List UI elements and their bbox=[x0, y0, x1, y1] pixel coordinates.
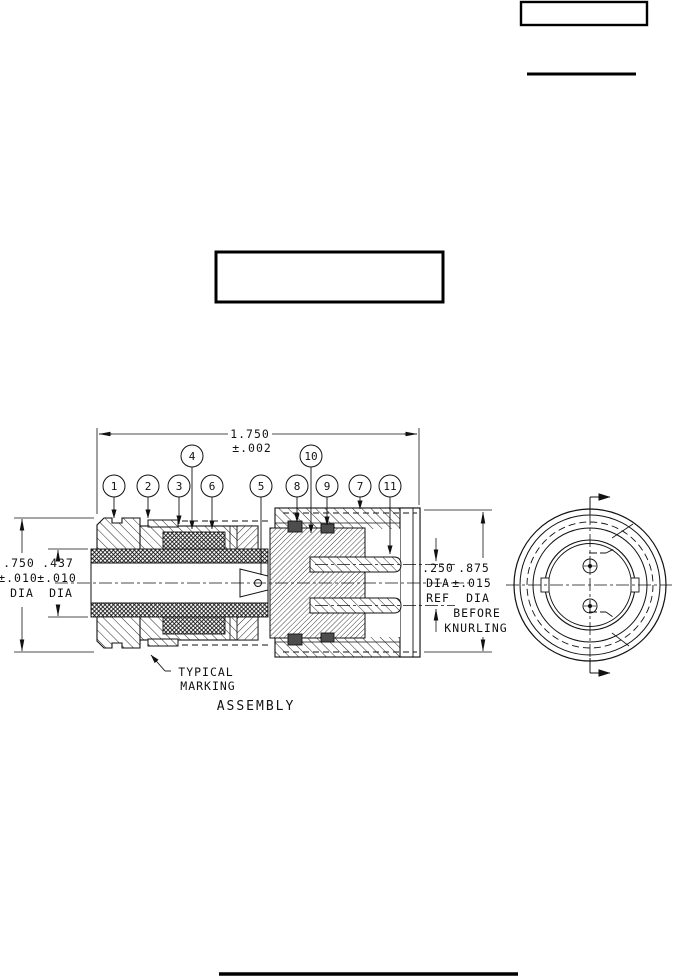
drawing-sheet: 1.750 ±.002 .750 ±.010 DIA .437 ±.010 DI… bbox=[0, 0, 673, 978]
marking-note: TYPICAL MARKING bbox=[151, 655, 236, 693]
braid-band-top bbox=[91, 549, 268, 563]
seal-ring bbox=[321, 524, 334, 533]
mid-body-boss-top bbox=[148, 520, 178, 527]
note-box bbox=[216, 252, 443, 302]
dim-knurl-l3: DIA bbox=[466, 591, 490, 605]
seal-ring bbox=[288, 634, 302, 645]
front-ring-top bbox=[237, 526, 258, 549]
callout-8-label: 8 bbox=[294, 480, 301, 493]
marking-note-line2: MARKING bbox=[180, 679, 235, 693]
seal-ring bbox=[288, 521, 302, 532]
dim-cable-unit: DIA bbox=[49, 586, 73, 600]
callout-4-label: 4 bbox=[189, 450, 196, 463]
dim-pin-spacing: .250 DIA REF bbox=[422, 538, 454, 632]
dim-cable-value: .437 bbox=[42, 556, 74, 570]
dim-knurl-l5: KNURLING bbox=[444, 621, 507, 635]
dim-cable-tol: ±.010 bbox=[37, 571, 77, 585]
seal-ring bbox=[321, 633, 334, 642]
dim-knurl-l2: ±.015 bbox=[452, 576, 492, 590]
callout-10-label: 10 bbox=[304, 450, 317, 463]
assembly-view bbox=[55, 428, 470, 657]
view-title: ASSEMBLY bbox=[217, 699, 296, 714]
dim-pin-l3: REF bbox=[426, 591, 450, 605]
dim-outer-value: .750 bbox=[3, 556, 35, 570]
dim-knurl-l4: BEFORE bbox=[453, 606, 501, 620]
callout-7-label: 7 bbox=[357, 480, 364, 493]
callout-2-label: 2 bbox=[145, 480, 152, 493]
dim-length-value: 1.750 bbox=[230, 427, 270, 441]
callout-6-label: 6 bbox=[209, 480, 216, 493]
marking-note-line1: TYPICAL bbox=[178, 665, 233, 679]
connector-face-plate bbox=[400, 508, 420, 657]
ferrule-top bbox=[163, 532, 225, 549]
front-ring-bottom bbox=[237, 617, 258, 640]
ferrule-bottom bbox=[163, 617, 225, 634]
revision-box bbox=[521, 2, 647, 25]
mid-body-boss-bottom bbox=[148, 639, 178, 646]
dim-overall-length: 1.750 ±.002 bbox=[99, 427, 417, 455]
braid-band-bottom bbox=[91, 603, 268, 617]
dim-outer-dia: .750 ±.010 DIA bbox=[0, 518, 94, 652]
dim-pin-l1: .250 bbox=[422, 561, 454, 575]
dim-pin-l2: DIA bbox=[426, 576, 450, 590]
dim-length-tol: ±.002 bbox=[232, 441, 272, 455]
callout-5-label: 5 bbox=[258, 480, 265, 493]
callout-11-label: 11 bbox=[383, 480, 396, 493]
callout-1-label: 1 bbox=[111, 480, 118, 493]
callout-9-label: 9 bbox=[324, 480, 331, 493]
end-view bbox=[506, 497, 672, 673]
dim-outer-unit: DIA bbox=[10, 586, 34, 600]
callout-3-label: 3 bbox=[176, 480, 183, 493]
engineering-drawing: 1.750 ±.002 .750 ±.010 DIA .437 ±.010 DI… bbox=[0, 0, 673, 978]
dim-outer-tol: ±.010 bbox=[0, 571, 38, 585]
dim-knurl-l1: .875 bbox=[458, 561, 490, 575]
